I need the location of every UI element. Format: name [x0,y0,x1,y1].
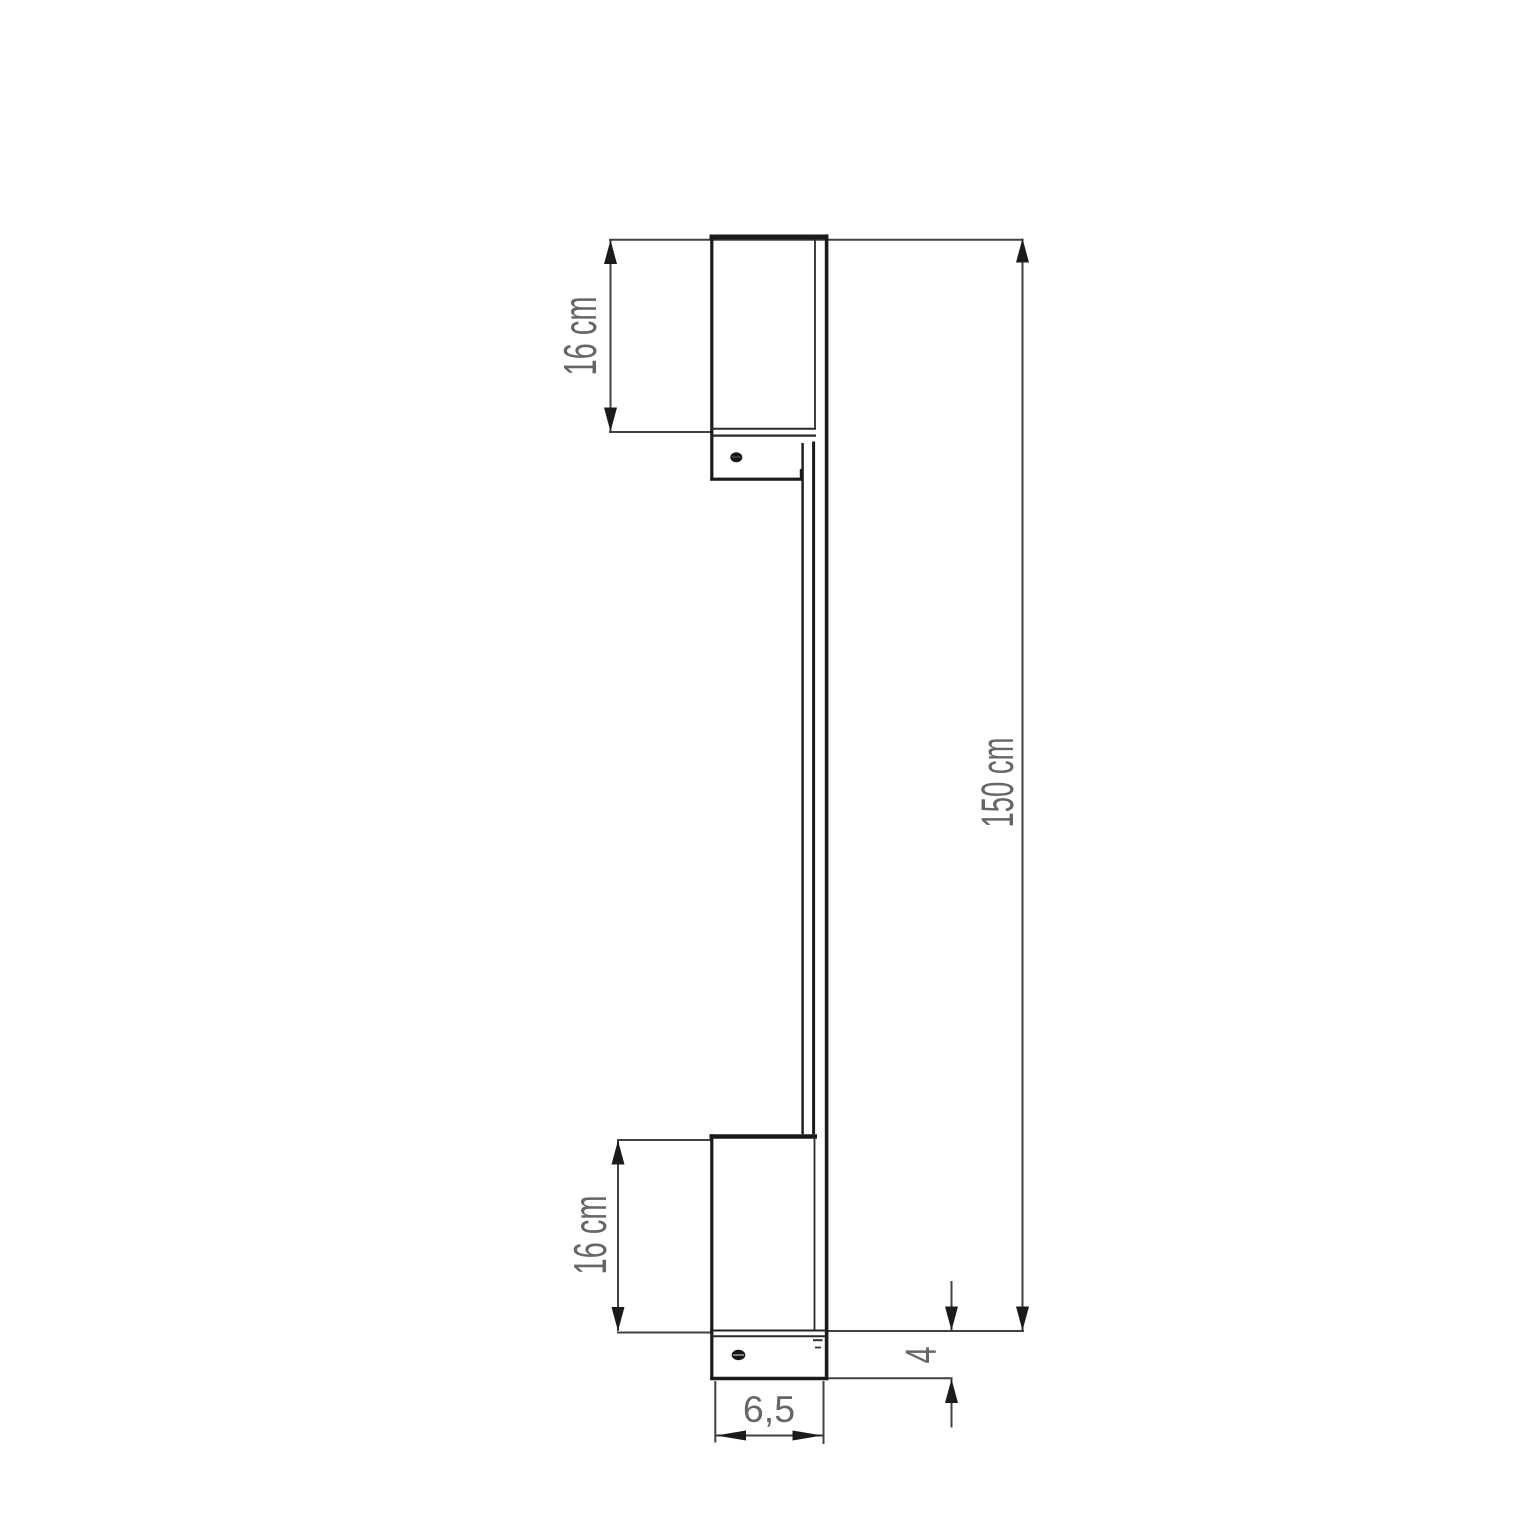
svg-text:150 cm: 150 cm [972,738,1023,828]
svg-text:16 cm: 16 cm [564,1196,616,1275]
svg-text:4: 4 [897,1347,946,1364]
svg-text:16 cm: 16 cm [554,297,606,376]
svg-text:6,5: 6,5 [743,1388,795,1430]
